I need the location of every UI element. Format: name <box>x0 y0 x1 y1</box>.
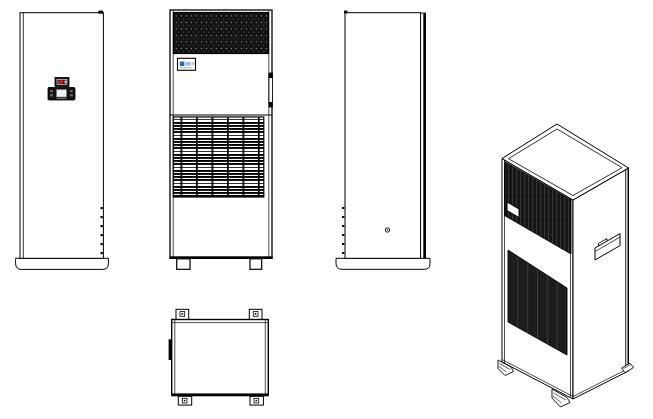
isometric-group <box>498 124 634 407</box>
side-view-group <box>336 11 430 270</box>
front-view-drawing <box>15 10 112 272</box>
isometric-view-drawing <box>487 118 653 410</box>
panel-button <box>70 90 73 92</box>
right-face <box>573 168 629 399</box>
panel-button <box>50 90 53 92</box>
mounting-tab-top-left <box>176 309 189 319</box>
lcd-screen <box>57 90 67 98</box>
logo-mark-light <box>186 62 191 66</box>
logo-mark <box>180 62 185 67</box>
perforated-top-grille <box>174 13 269 54</box>
brand-label <box>178 58 196 70</box>
panel-label-strip <box>57 98 67 99</box>
drawing-canvas <box>0 0 653 419</box>
mounting-tab-bottom-left <box>178 396 191 405</box>
grille-view-group <box>170 10 273 269</box>
front-view-group <box>16 11 109 270</box>
controller-panel <box>48 88 75 101</box>
side-view-drawing <box>330 10 434 272</box>
mounting-tab-top-right <box>249 309 262 319</box>
tab-hole-dot <box>255 400 257 402</box>
top-view-drawing <box>163 300 278 412</box>
tab-hole-dot <box>181 313 183 315</box>
top-cap-mark <box>344 11 347 14</box>
grille-view-drawing <box>165 8 278 274</box>
panel-button <box>50 94 53 96</box>
front-edge-bar <box>423 13 426 259</box>
tab-hole-dot <box>184 400 186 402</box>
logo-text-block <box>191 63 194 66</box>
mounting-tab-bottom-right <box>250 396 263 405</box>
logo-text-line <box>180 67 192 68</box>
top-cap-mark <box>99 11 104 14</box>
hinge-marks <box>342 207 344 254</box>
louvered-grille <box>173 117 263 197</box>
edge-handle <box>269 73 273 107</box>
top-view-group <box>169 309 269 405</box>
controller-indicator <box>55 78 69 87</box>
edge-bracket <box>169 339 171 360</box>
indicator-red-bar <box>58 80 64 83</box>
cabinet-body <box>20 13 103 259</box>
base-plinth <box>16 258 109 269</box>
drain-hole <box>385 228 389 232</box>
tab-hole-dot <box>255 313 257 315</box>
panel-button <box>70 94 73 96</box>
base-plinth <box>336 258 430 269</box>
foot-left <box>177 259 190 270</box>
foot-right <box>250 259 262 270</box>
indicator-dot <box>65 81 67 84</box>
cabinet-body <box>345 13 421 259</box>
cabinet-top-panel <box>172 320 269 395</box>
